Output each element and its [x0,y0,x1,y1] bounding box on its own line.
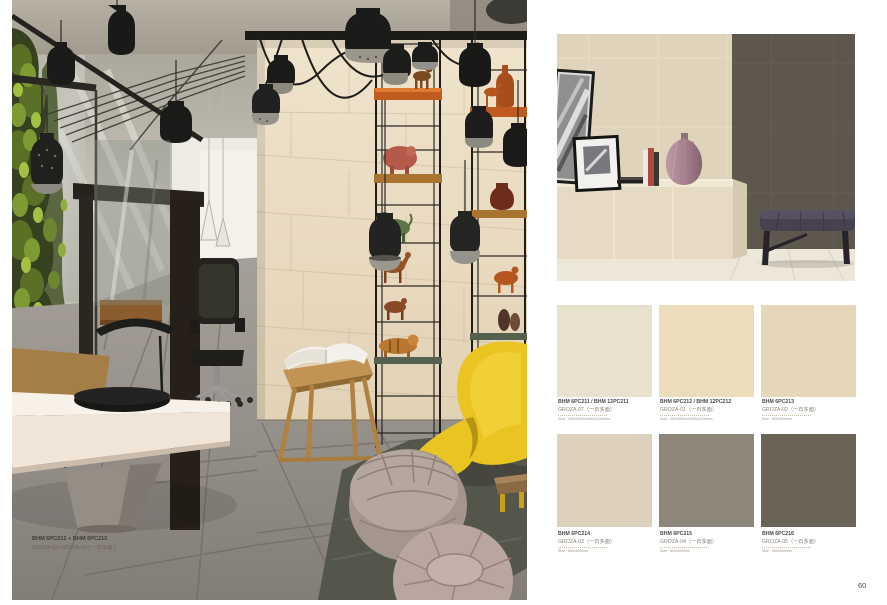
svg-text:BHM 6PC212 + BHM 6PC215: BHM 6PC212 + BHM 6PC215 [32,536,107,542]
svg-text:GROZA-02+GROZA-04 ( 一石多面 ): GROZA-02+GROZA-04 ( 一石多面 ) [32,543,116,551]
